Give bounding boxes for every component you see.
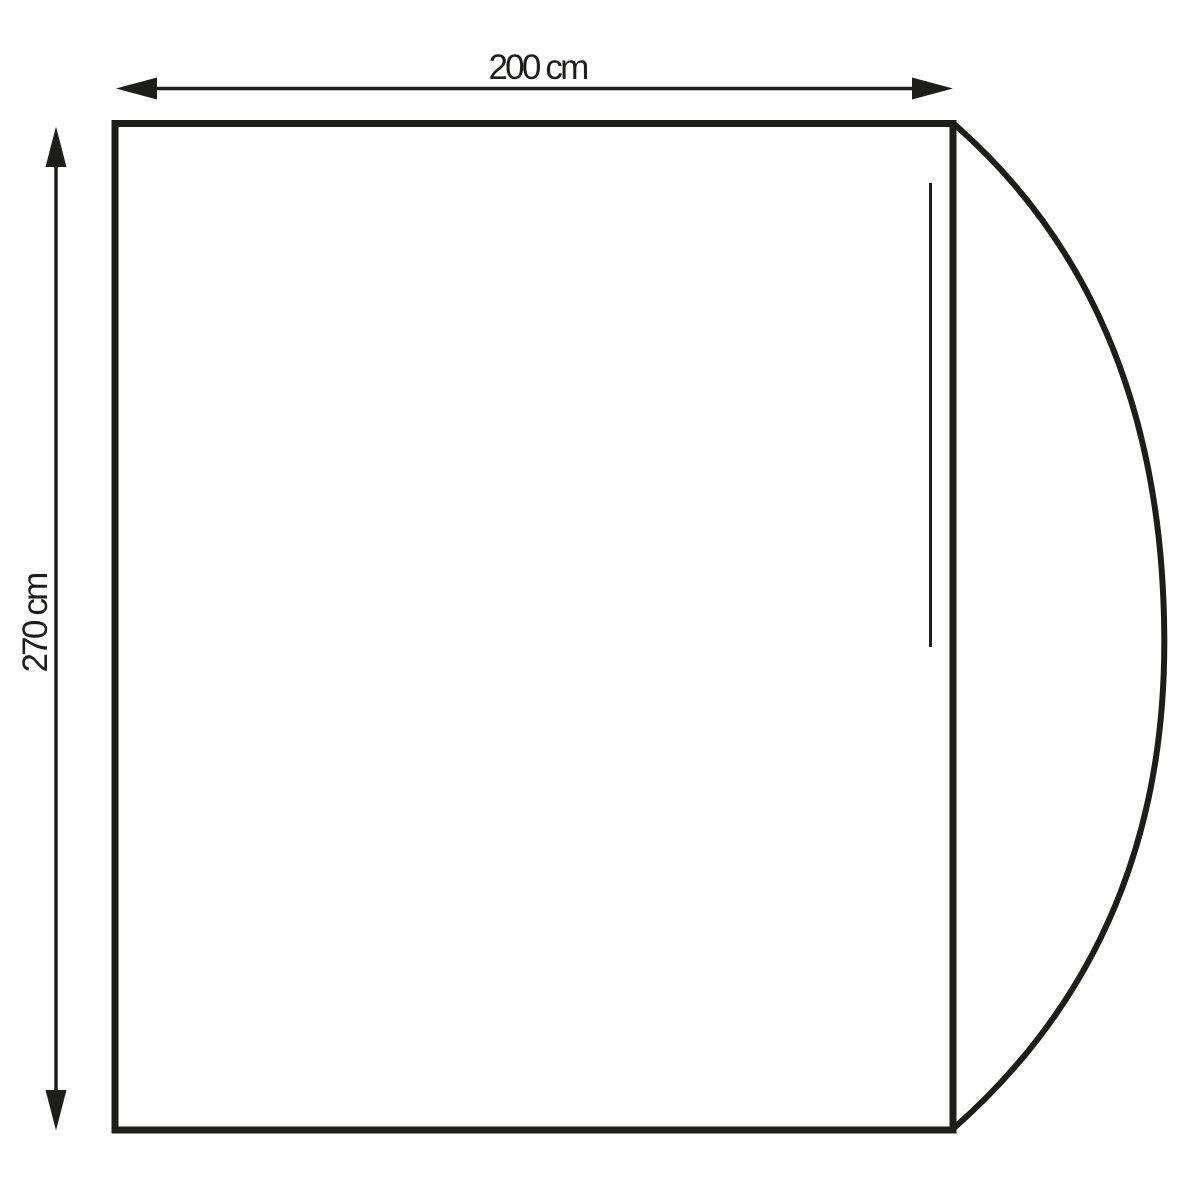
svg-text:200 cm: 200 cm xyxy=(489,48,588,87)
svg-text:270 cm: 270 cm xyxy=(16,574,55,673)
